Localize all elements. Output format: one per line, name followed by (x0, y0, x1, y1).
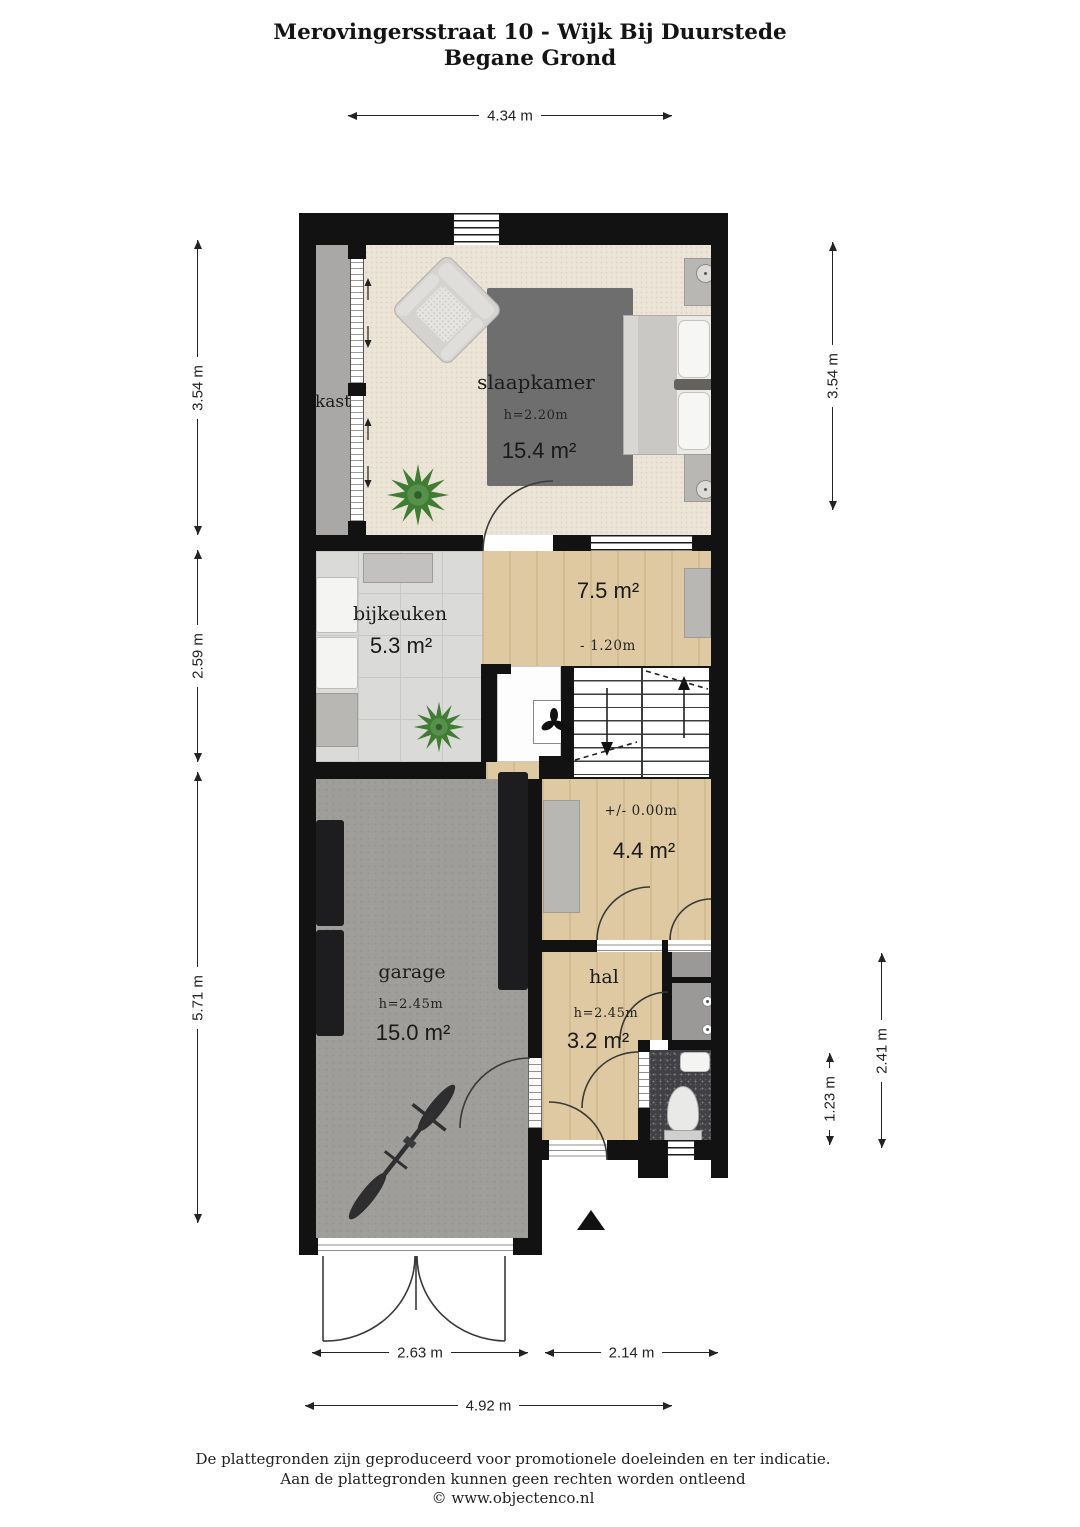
area-hal: 3.2 m² (567, 1028, 629, 1054)
door-threshold (650, 1040, 668, 1050)
dimension-bottom-entrance: 2.14 m (545, 1352, 718, 1353)
room-label-garage: garage (378, 961, 445, 983)
footer-disclaimer: De plattegronden zijn geproduceerd voor … (133, 1450, 893, 1509)
footer-line2: Aan de plattegronden kunnen geen rechten… (133, 1470, 893, 1490)
dimension-left-middle: 2.59 m (197, 550, 198, 762)
dimension-right-hall: 2.41 m (881, 953, 882, 1148)
bed-runner (674, 379, 714, 390)
floorplan-page: Merovingersstraat 10 - Wijk Bij Duursted… (0, 0, 1080, 1527)
dimension-right-toilet: 1.23 m (829, 1053, 830, 1145)
footer-line1: De plattegronden zijn geproduceerd voor … (133, 1450, 893, 1470)
bed-foot (624, 316, 638, 454)
level-split-level: - 1.20m (580, 638, 636, 654)
wall (348, 521, 366, 535)
door-threshold (528, 1058, 542, 1128)
dimension-right-bedroom: 3.54 m (832, 242, 833, 510)
dimension-top-label: 4.34 m (479, 108, 541, 125)
wall (693, 535, 728, 551)
wall (662, 952, 672, 1040)
window-icon (590, 535, 693, 551)
floor-kast (316, 245, 350, 535)
wall (528, 779, 542, 1058)
wall (299, 762, 486, 779)
pillow (678, 320, 710, 378)
window-icon (453, 213, 500, 245)
dimension-top: 4.34 m (348, 115, 672, 116)
bed (623, 315, 713, 455)
area-garage: 15.0 m² (376, 1020, 451, 1046)
wall (299, 535, 483, 551)
cabinet (543, 800, 580, 913)
wall (638, 1108, 650, 1140)
ventilation-fan-icon (540, 708, 568, 736)
stairs-divider (641, 668, 643, 777)
dimension-label: 3.54 m (825, 345, 842, 407)
dimension-label: 2.59 m (190, 625, 207, 687)
wall (638, 1160, 668, 1178)
dimension-bottom-total: 4.92 m (305, 1405, 672, 1406)
wall (672, 977, 711, 983)
plant-icon (385, 462, 451, 528)
dimension-label: 4.92 m (458, 1398, 520, 1415)
ceiling-height-hal: h=2.45m (574, 1006, 639, 1021)
wall (299, 1238, 318, 1255)
wall (481, 664, 511, 674)
garage-door-threshold (318, 1240, 513, 1255)
door-threshold (638, 1052, 650, 1108)
ceiling-height-slaapkamer: h=2.20m (504, 408, 569, 423)
dimension-left-bedroom: 3.54 m (197, 240, 198, 535)
sink-icon (680, 1052, 710, 1072)
ceiling-height-garage: h=2.45m (379, 997, 444, 1012)
area-entree: 4.4 m² (613, 838, 675, 864)
area-split-level: 7.5 m² (577, 578, 639, 604)
plant-icon (412, 700, 466, 754)
room-label-slaapkamer: slaapkamer (477, 370, 595, 394)
wall (668, 1040, 711, 1050)
storage-rack (316, 820, 344, 926)
cabinet (316, 693, 358, 747)
entrance-marker-icon (577, 1210, 605, 1230)
room-label-hal: hal (589, 966, 619, 988)
garage-door-arc (323, 1256, 415, 1341)
wall (538, 940, 597, 952)
pillow (678, 392, 710, 450)
door-threshold (597, 940, 662, 952)
wall (481, 664, 497, 762)
level-entree: +/- 0.00m (605, 803, 678, 819)
title-address: Merovingersstraat 10 - Wijk Bij Duursted… (150, 20, 910, 46)
dimension-label: 5.71 m (190, 967, 207, 1029)
counter (363, 553, 433, 583)
wall (638, 1040, 650, 1052)
wall (607, 1140, 667, 1160)
dimension-label: 2.41 m (874, 1020, 891, 1082)
wall (299, 213, 728, 245)
floor-closet-top (672, 952, 711, 977)
washing-machine (316, 637, 358, 689)
wall (348, 245, 366, 259)
stairs (572, 666, 711, 779)
toilet-icon (667, 1086, 699, 1132)
area-bijkeuken: 5.3 m² (370, 633, 432, 659)
dimension-label: 2.63 m (389, 1345, 451, 1362)
dimension-label: 1.23 m (822, 1068, 839, 1130)
door-threshold (668, 940, 711, 952)
wall (695, 1140, 728, 1160)
wall (539, 756, 572, 779)
washing-machine (316, 577, 358, 633)
page-title: Merovingersstraat 10 - Wijk Bij Duursted… (150, 20, 910, 72)
dimension-left-garage: 5.71 m (197, 772, 198, 1223)
room-label-bijkeuken: bijkeuken (353, 603, 447, 625)
window-icon (667, 1140, 695, 1160)
dimension-label: 2.14 m (601, 1345, 663, 1362)
title-floor: Begane Grond (150, 46, 910, 72)
dimension-label: 3.54 m (190, 357, 207, 419)
area-slaapkamer: 15.4 m² (502, 438, 577, 464)
storage-rack (498, 772, 528, 990)
wall (299, 213, 316, 1255)
storage-rack (316, 930, 344, 1036)
front-door-threshold (549, 1140, 607, 1160)
door-threshold (483, 535, 553, 551)
garage-door-arc (417, 1256, 505, 1341)
footer-copyright: © www.objectenco.nl (133, 1489, 893, 1509)
wall (553, 535, 590, 551)
dimension-bottom-garage: 2.63 m (312, 1352, 528, 1353)
wall (711, 213, 728, 1178)
doormat (684, 568, 711, 638)
wall (528, 1128, 542, 1255)
room-label-kast: kast (315, 392, 351, 412)
wall (542, 1140, 549, 1160)
wall (513, 1238, 542, 1255)
